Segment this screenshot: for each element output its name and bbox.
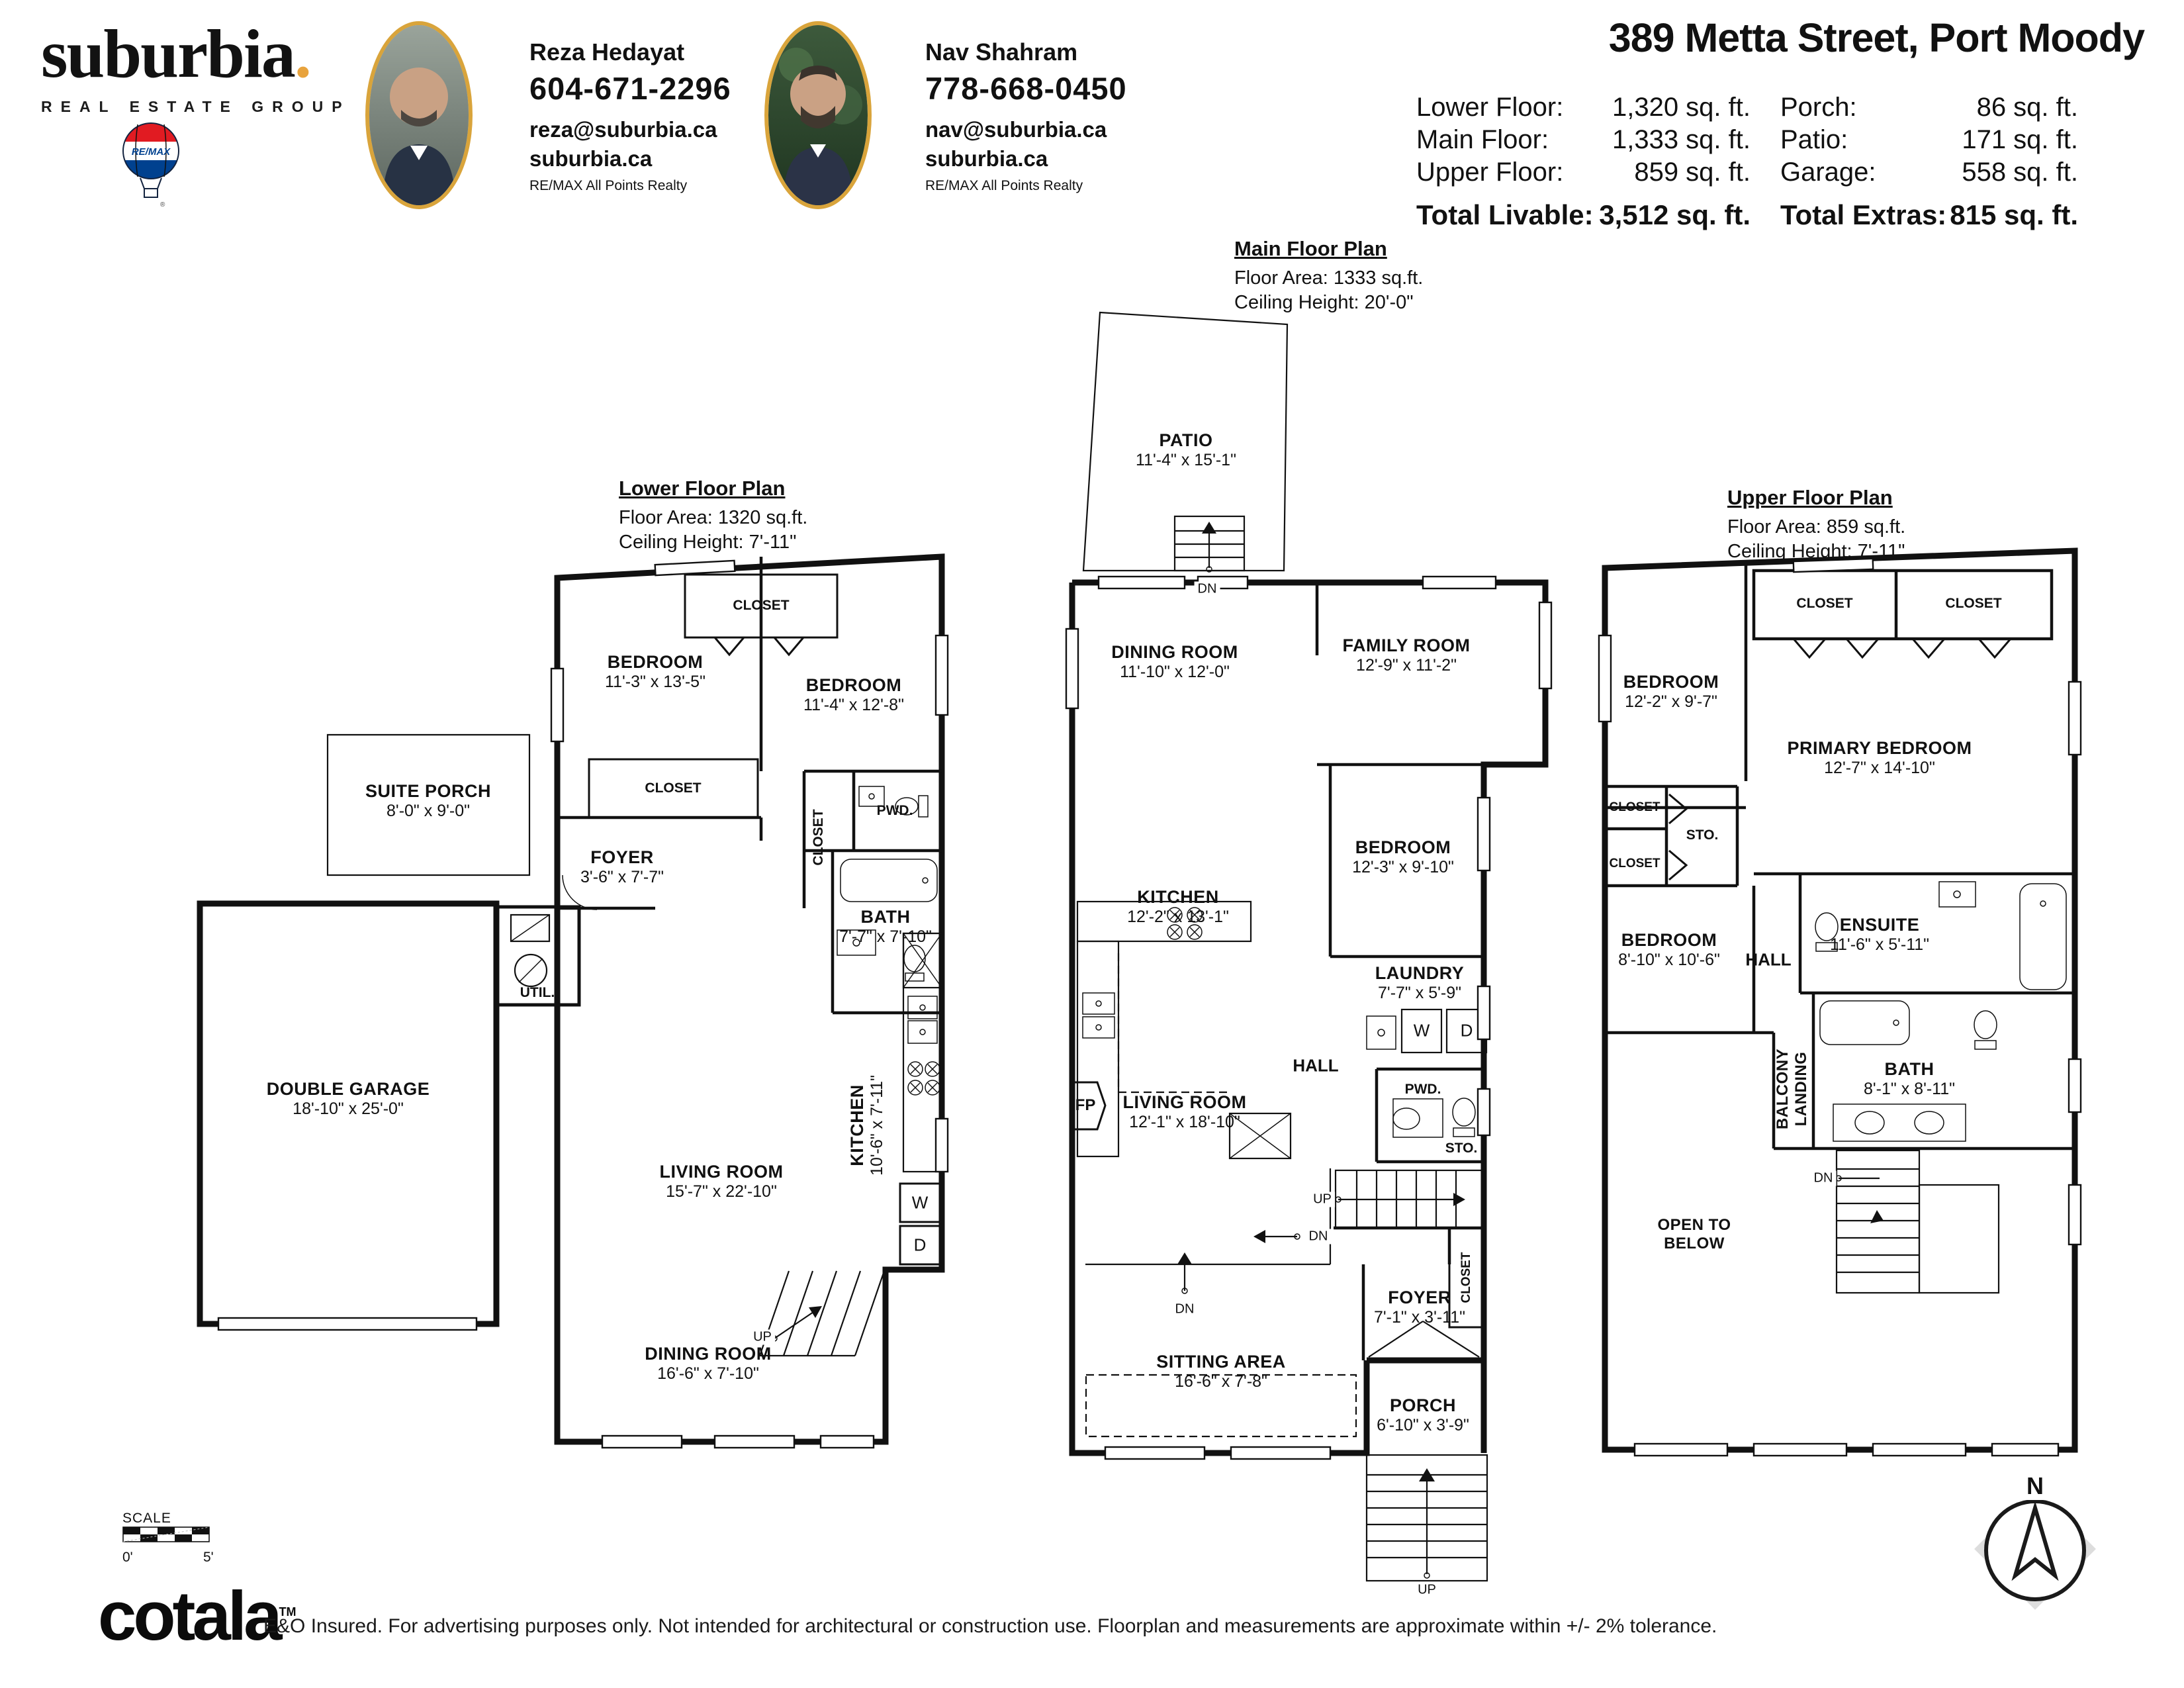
room-label-closet: CLOSET (1609, 800, 1660, 815)
agent-name: Nav Shahram (925, 38, 1144, 66)
room-label-sitting: SITTING AREA 16'-6" x 7'-8" (1156, 1352, 1286, 1391)
brand-tagline: REAL ESTATE GROUP (41, 98, 352, 116)
stat-label: Garage: (1780, 158, 1876, 187)
floorplan-sheet: suburbia. REAL ESTATE GROUP RE/MAX ® (0, 0, 2184, 1688)
suburbia-logo: suburbia. (41, 20, 352, 89)
room-label-suite-porch: SUITE PORCH 8'-0" x 9'-0" (365, 781, 491, 821)
stat-value: 1,333 sq. ft. (1612, 125, 1751, 155)
lower-floor-plan: Lower Floor Plan Floor Area: 1320 sq.ft.… (192, 470, 953, 1483)
stairs-dn-label: DN (1811, 1171, 1837, 1186)
room-label-bedroom: BEDROOM 11'-3" x 13'-5" (605, 652, 705, 692)
agent-card-reza: Reza Hedayat 604-671-2296 reza@suburbia.… (529, 38, 748, 194)
stat-value: 1,320 sq. ft. (1612, 93, 1751, 122)
room-label-bedroom: BEDROOM 12'-2" x 9'-7" (1623, 672, 1719, 712)
room-label-closet: CLOSET (811, 809, 827, 865)
room-label-util: UTIL. (520, 985, 555, 1001)
room-label-bedroom: BEDROOM 12'-3" x 9'-10" (1352, 837, 1454, 877)
room-label-foyer: FOYER 3'-6" x 7'-7" (580, 847, 664, 887)
agent-photo-nav (764, 21, 872, 209)
stat-value: 171 sq. ft. (1962, 125, 2078, 155)
stats-row: Upper Floor:859 sq. ft. Garage:558 sq. f… (1416, 158, 2144, 187)
washer-label: W (912, 1193, 929, 1213)
agent-website: suburbia.ca (925, 146, 1144, 171)
upper-floor-plan: Upper Floor Plan Floor Area: 859 sq.ft.C… (1595, 463, 2085, 1463)
room-label-bedroom: BEDROOM 8'-10" x 10'-6" (1618, 930, 1720, 970)
room-label-kitchen: KITCHEN 12'-2" x 13'-1" (1127, 887, 1229, 927)
room-label-foyer: FOYER 7'-1" x 3'-11" (1374, 1288, 1465, 1327)
stairs-up-label: UP (1414, 1583, 1439, 1598)
north-compass-icon: N (1969, 1476, 2101, 1622)
suburbia-logo-text: suburbia (41, 16, 295, 92)
room-label-patio: PATIO 11'-4" x 15'-1" (1136, 430, 1236, 470)
room-label-bath: BATH 7'-7" x 7'-10" (839, 907, 932, 947)
total-livable-label: Total Livable: (1416, 199, 1594, 231)
lower-plan-walls (192, 470, 953, 1483)
room-label-dining: DINING ROOM 11'-10" x 12'-0" (1111, 642, 1238, 682)
stats-totals: Total Livable:3,512 sq. ft. Total Extras… (1416, 199, 2144, 231)
stat-label: Porch: (1780, 93, 1857, 122)
suburbia-logo-dot: . (295, 16, 310, 92)
room-label-sto: STO. (1686, 827, 1719, 843)
agent-card-nav: Nav Shahram 778-668-0450 nav@suburbia.ca… (925, 38, 1144, 194)
stairs-dn-label: DN (1172, 1302, 1198, 1317)
page-title: 389 Metta Street, Port Moody (1257, 15, 2144, 61)
main-plan-walls (1032, 232, 1569, 1595)
stat-value: 86 sq. ft. (1977, 93, 2078, 122)
remax-balloon-icon: RE/MAX ® (111, 120, 191, 213)
scale-five: 5' (203, 1550, 214, 1566)
room-label-closet: CLOSET (1796, 596, 1852, 612)
fireplace-label: FP (1075, 1096, 1096, 1115)
agent-email: reza@suburbia.ca (529, 117, 748, 142)
stat-label: Main Floor: (1416, 125, 1549, 155)
total-extras-label: Total Extras: (1780, 199, 1946, 231)
room-label-primary-bedroom: PRIMARY BEDROOM 12'-7" x 14'-10" (1787, 738, 1972, 778)
room-label-laundry: LAUNDRY 7'-7" x 5'-9" (1375, 963, 1465, 1003)
room-label-pwd: PWD. (877, 803, 913, 819)
room-label-family: FAMILY ROOM 12'-9" x 11'-2" (1342, 635, 1470, 675)
svg-text:®: ® (160, 201, 165, 209)
room-label-hall: HALL (1293, 1056, 1338, 1076)
total-extras-value: 815 sq. ft. (1950, 199, 2078, 231)
agent-photo-reza (365, 21, 473, 209)
stat-label: Upper Floor: (1416, 158, 1563, 187)
room-label-closet: CLOSET (1945, 596, 2001, 612)
scale-label: SCALE (122, 1511, 228, 1526)
washer-label: W (1414, 1021, 1430, 1041)
stairs-dn-label: DN (1195, 582, 1220, 597)
stairs-up-label: UP (750, 1330, 775, 1345)
agent-phone: 604-671-2296 (529, 70, 748, 107)
agent-brokerage: RE/MAX All Points Realty (529, 178, 748, 194)
compass-north-label: N (2021, 1472, 2049, 1500)
dryer-label: D (914, 1235, 927, 1256)
stairs-up-label: UP (1310, 1192, 1335, 1207)
stat-label: Lower Floor: (1416, 93, 1563, 122)
room-label-living: LIVING ROOM 15'-7" x 22'-10" (660, 1162, 784, 1201)
agent-phone: 778-668-0450 (925, 70, 1144, 107)
main-floor-plan: Main Floor Plan Floor Area: 1333 sq.ft.C… (1032, 232, 1569, 1595)
stats-row: Lower Floor:1,320 sq. ft. Porch:86 sq. f… (1416, 93, 2144, 122)
room-label-sto: STO. (1445, 1141, 1478, 1156)
room-label-bedroom: BEDROOM 11'-4" x 12'-8" (803, 675, 904, 715)
room-label-closet: CLOSET (1609, 857, 1660, 871)
area-stats: Lower Floor:1,320 sq. ft. Porch:86 sq. f… (1416, 93, 2144, 231)
room-label-kitchen: KITCHEN 10'-6" x 7'-11" (847, 1075, 887, 1176)
room-label-living: LIVING ROOM 12'-1" x 18'-10" (1123, 1092, 1247, 1132)
scale-indicator: SCALE 0' 5' (122, 1511, 228, 1550)
room-label-closet: CLOSET (733, 598, 789, 614)
scale-zero: 0' (122, 1550, 133, 1566)
stats-row: Main Floor:1,333 sq. ft. Patio:171 sq. f… (1416, 125, 2144, 155)
stairs-dn-label: DN (1306, 1229, 1332, 1244)
agent-name: Reza Hedayat (529, 38, 748, 66)
room-label-porch: PORCH 6'-10" x 3'-9" (1377, 1395, 1469, 1435)
stat-value: 859 sq. ft. (1634, 158, 1751, 187)
room-label-dining: DINING ROOM 16'-6" x 7'-10" (645, 1344, 772, 1383)
room-label-garage: DOUBLE GARAGE 18'-10" x 25'-0" (267, 1079, 430, 1119)
agent-website: suburbia.ca (529, 146, 748, 171)
room-label-closet: CLOSET (645, 780, 701, 796)
open-to-below-label: OPEN TO BELOW (1657, 1216, 1731, 1253)
room-label-ensuite: ENSUITE 11'-6" x 5'-11" (1830, 915, 1929, 955)
dryer-label: D (1461, 1021, 1473, 1041)
room-label-pwd: PWD. (1405, 1082, 1441, 1098)
total-livable-value: 3,512 sq. ft. (1599, 199, 1751, 231)
disclaimer-text: E&O Insured. For advertising purposes on… (263, 1615, 1717, 1638)
agent-email: nav@suburbia.ca (925, 117, 1144, 142)
scale-bar-icon (122, 1526, 228, 1544)
svg-text:RE/MAX: RE/MAX (132, 146, 171, 158)
room-label-bath: BATH 8'-1" x 8'-11" (1864, 1059, 1955, 1099)
stat-label: Patio: (1780, 125, 1848, 155)
room-label-balcony-landing: BALCONY LANDING (1774, 1049, 1811, 1129)
room-label-hall: HALL (1745, 950, 1791, 970)
stat-value: 558 sq. ft. (1962, 158, 2078, 187)
brand-block: suburbia. REAL ESTATE GROUP (41, 20, 352, 116)
agent-brokerage: RE/MAX All Points Realty (925, 178, 1144, 194)
